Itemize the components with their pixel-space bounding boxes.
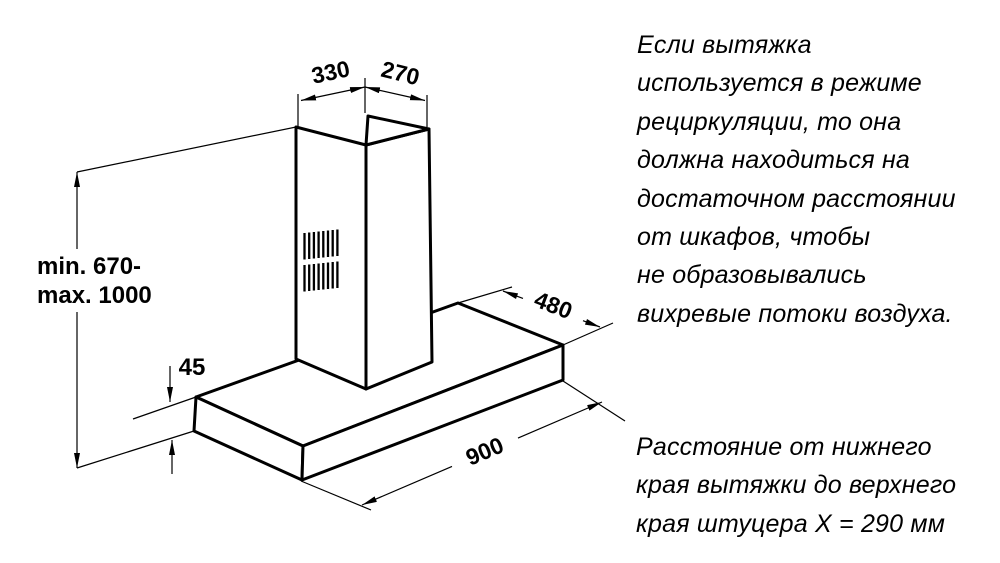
dim-label-330: 330 <box>309 55 352 88</box>
manual-page: 330 270 min. 670- max. 1000 45 480 900 Е… <box>0 0 1000 563</box>
dim-label-height-min: min. 670- <box>37 253 141 280</box>
note-recirculation-text: Если вытяжка используется в режиме рецир… <box>637 26 987 333</box>
dim-label-270: 270 <box>379 56 423 91</box>
dim-line-480-left <box>503 291 523 298</box>
hood-chimney <box>296 116 432 389</box>
dim-label-45: 45 <box>179 354 206 381</box>
chimney-right-face <box>366 129 432 389</box>
note-connector-distance-text: Расстояние от нижнего края вытяжки до ве… <box>636 428 991 543</box>
dim-line-330 <box>301 87 365 101</box>
chimney-left-face <box>296 127 366 389</box>
dim-line-480-right <box>583 321 600 327</box>
dim-line-900-left <box>362 466 452 505</box>
dim-label-900: 900 <box>462 432 507 471</box>
dim-line-900-right <box>518 402 602 438</box>
dim-label-height-max: max. 1000 <box>37 282 152 309</box>
dim-label-480: 480 <box>531 286 576 324</box>
